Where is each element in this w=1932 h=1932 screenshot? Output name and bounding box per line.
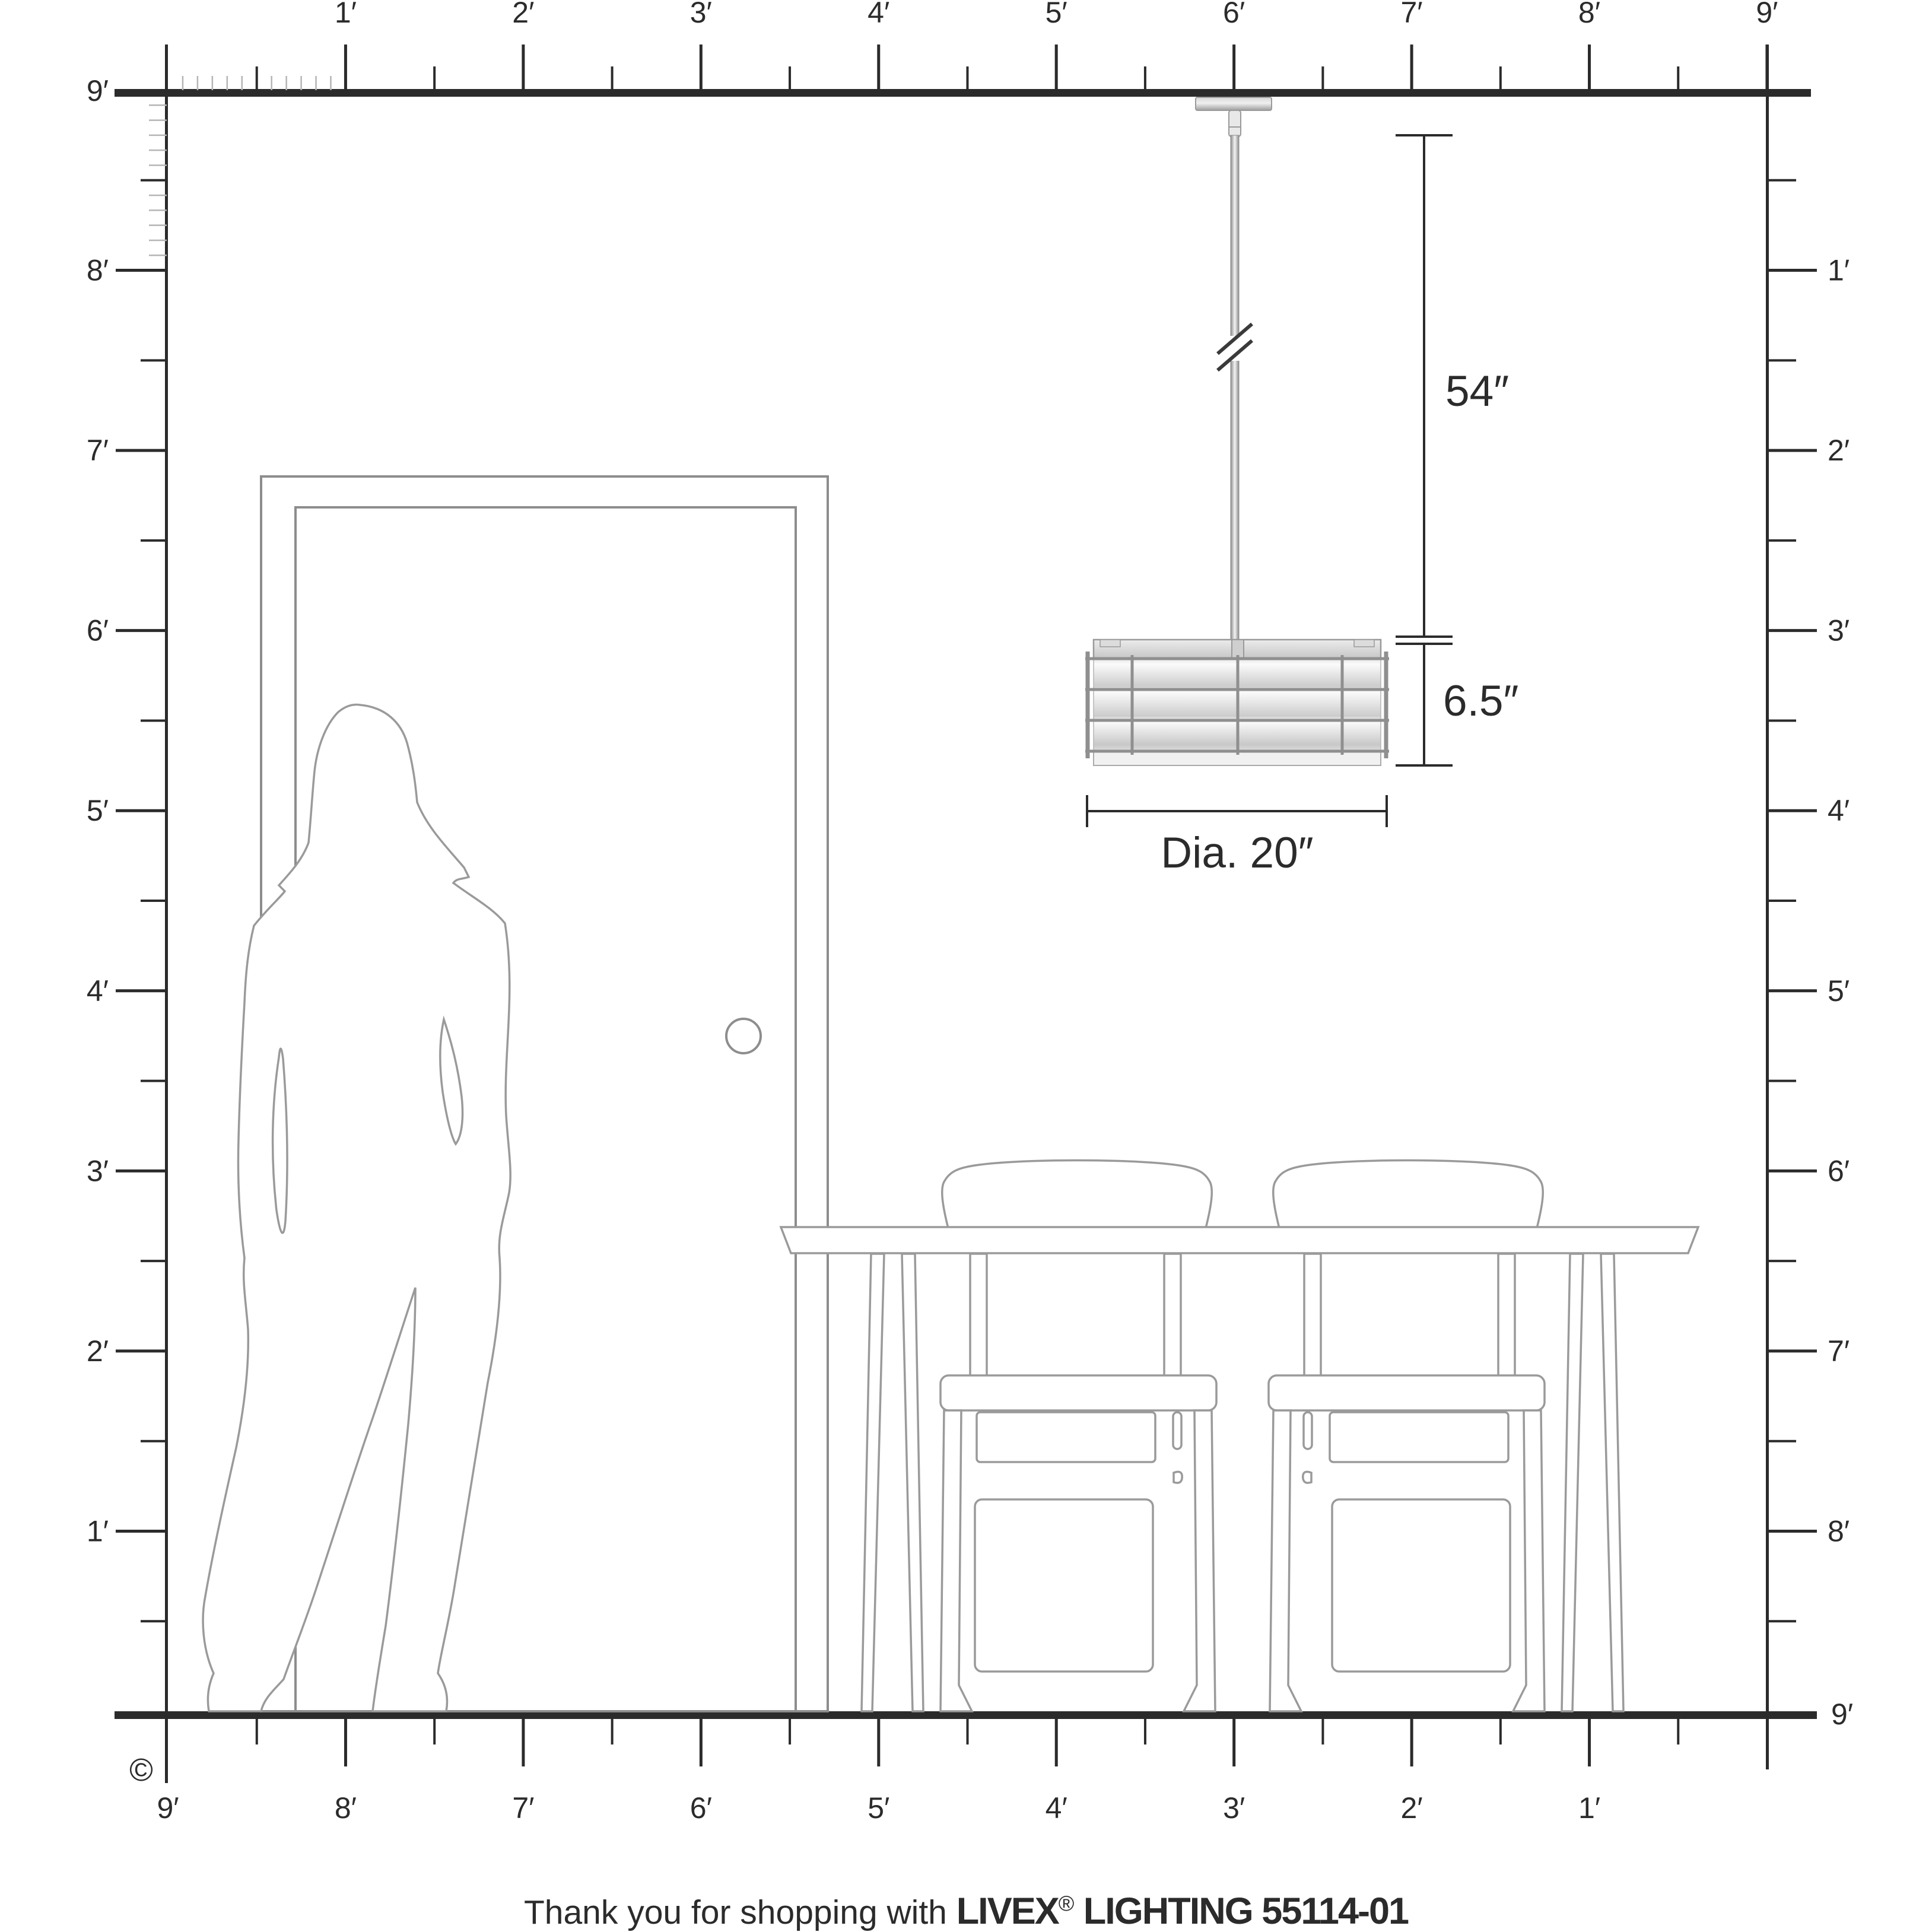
bottom-ruler-label: 7′	[512, 1791, 534, 1825]
chair-lower	[940, 1254, 1216, 1711]
chair-seat	[940, 1375, 1216, 1410]
top-ruler-label: 6′	[1223, 0, 1245, 29]
bottom-ruler-label: 6′	[690, 1791, 712, 1825]
diameter-dimension-label: Dia. 20″	[1161, 829, 1313, 877]
bottom-ruler-label: 2′	[1401, 1791, 1423, 1825]
right-ruler-label: 8′	[1828, 1514, 1850, 1547]
bottom-ruler-label: 1′	[1578, 1791, 1600, 1825]
footer-prefix: Thank you for shopping with	[524, 1893, 957, 1931]
left-ruler-label: 3′	[87, 1154, 109, 1187]
right-ruler-label: 3′	[1828, 614, 1850, 647]
right-ruler-label: 5′	[1828, 974, 1850, 1008]
right-wall-line	[1766, 45, 1769, 1769]
drum-top-tab-right	[1354, 640, 1374, 647]
right-ruler-label: 6′	[1828, 1154, 1850, 1187]
right-ruler-label: 7′	[1828, 1334, 1850, 1368]
left-ruler-label: 8′	[87, 254, 109, 287]
top-ruler-label: 2′	[512, 0, 534, 29]
footer-model-number: LIGHTING 55114-01	[1074, 1890, 1409, 1932]
top-ruler-label: 7′	[1400, 0, 1422, 29]
table-top	[781, 1227, 1698, 1253]
drum-top-tab-left	[1100, 640, 1120, 647]
height-dimension-label: 6.5″	[1443, 677, 1518, 725]
top-ruler-label: 5′	[1046, 0, 1067, 29]
left-ruler-label: 4′	[87, 974, 109, 1008]
bottom-ruler-label: 8′	[335, 1791, 357, 1825]
left-wall-line	[165, 45, 168, 1783]
chair2-backrest	[1273, 1161, 1543, 1229]
table-leg-right-inner	[1562, 1254, 1583, 1711]
chair-leg-right	[1184, 1410, 1215, 1711]
right-ruler-label: 1′	[1828, 254, 1850, 287]
chair-back-post-right	[1164, 1254, 1181, 1380]
scale-diagram: 54″ 6.5″ Dia. 20″ 1′2′3′4′5′6′7′8′9′8′7′…	[0, 0, 1932, 1932]
top-ruler-label: 8′	[1578, 0, 1600, 29]
chair-leg-left	[940, 1410, 972, 1711]
ceiling-bar	[115, 89, 1811, 97]
table-leg-left-outer	[862, 1254, 884, 1711]
top-ruler-label: 1′	[335, 0, 357, 29]
top-ruler-label: 3′	[690, 0, 712, 29]
right-ruler-label: 2′	[1828, 434, 1850, 467]
footer-registered-mark: ®	[1059, 1891, 1075, 1915]
footer-text: Thank you for shopping with LIVEX® LIGHT…	[524, 1890, 1409, 1932]
left-ruler-label: 7′	[87, 434, 109, 467]
chair2-lower	[1269, 1254, 1545, 1711]
bottom-ruler-label: 9′	[157, 1791, 179, 1825]
left-ruler-label: 2′	[87, 1334, 109, 1368]
canopy-connector	[1229, 110, 1241, 136]
top-ruler-label: 9′	[1756, 0, 1778, 29]
door-knob	[726, 1019, 761, 1053]
left-ruler-label: 6′	[87, 614, 109, 647]
right-corner-bottom-label: 9′	[1831, 1698, 1853, 1731]
chair-bracket-detail	[1174, 1472, 1182, 1483]
chair-lower-opening	[975, 1499, 1153, 1672]
bottom-ruler-label: 4′	[1046, 1791, 1067, 1825]
chair-back-post-left	[970, 1254, 987, 1380]
top-ruler-label: 4′	[868, 0, 889, 29]
bottom-ruler-label: 5′	[868, 1791, 889, 1825]
drop-dimension-label: 54″	[1445, 367, 1509, 415]
left-ruler-label: 5′	[87, 794, 109, 827]
dining-table	[781, 1227, 1698, 1711]
footer-brand: LIVEX	[957, 1890, 1060, 1932]
right-ruler-label: 4′	[1828, 794, 1850, 827]
table-leg-right-outer	[1601, 1254, 1623, 1711]
chair-slot-detail	[1173, 1412, 1181, 1449]
bottom-ruler-label: 3′	[1223, 1791, 1245, 1825]
drum-cage	[1085, 652, 1389, 758]
chair-backrest	[942, 1161, 1212, 1229]
pendant-fixture	[1085, 97, 1389, 765]
hanging-rod	[1231, 135, 1239, 640]
table-leg-left-inner	[902, 1254, 923, 1711]
left-corner-top-label: 9′	[87, 74, 109, 107]
left-ruler-label: 1′	[87, 1514, 109, 1547]
copyright-symbol: ©	[129, 1752, 153, 1788]
chair-upper-opening	[977, 1412, 1155, 1462]
diameter-dimension-line	[1087, 795, 1387, 827]
ceiling-canopy	[1196, 97, 1272, 110]
drop-dimension-line	[1396, 135, 1453, 637]
